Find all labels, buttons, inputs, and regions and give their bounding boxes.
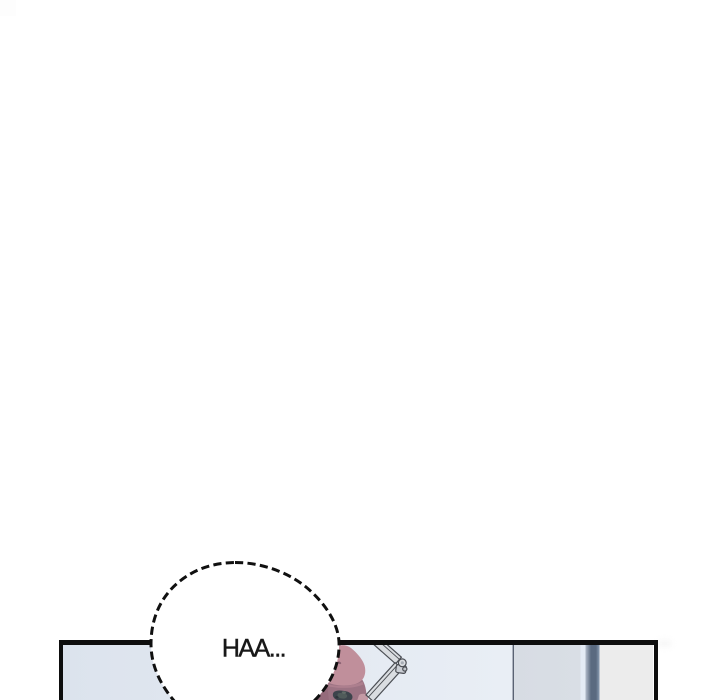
svg-text:HAA...: HAA... bbox=[222, 634, 285, 662]
